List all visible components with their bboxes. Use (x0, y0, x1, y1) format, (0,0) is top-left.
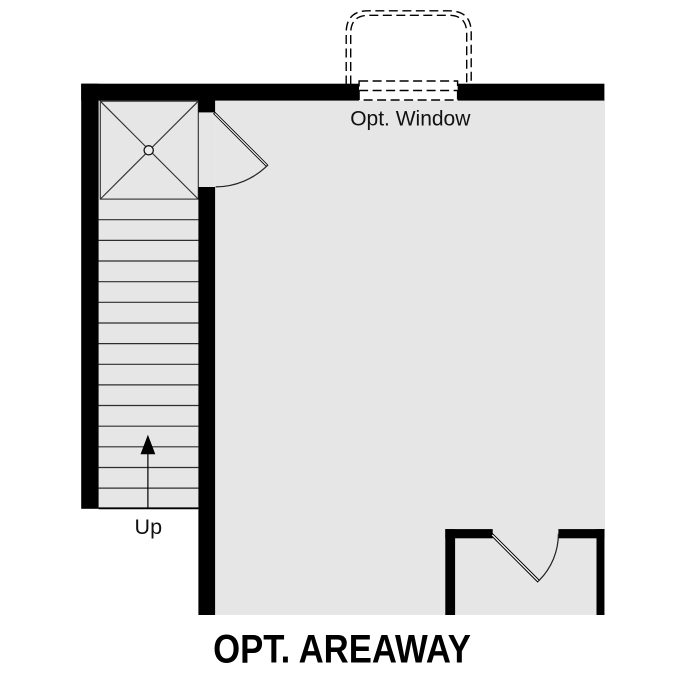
svg-text:OPT. AREAWAY: OPT. AREAWAY (213, 626, 471, 671)
svg-text:Opt. Window: Opt. Window (350, 108, 471, 131)
svg-text:Up: Up (135, 515, 163, 539)
